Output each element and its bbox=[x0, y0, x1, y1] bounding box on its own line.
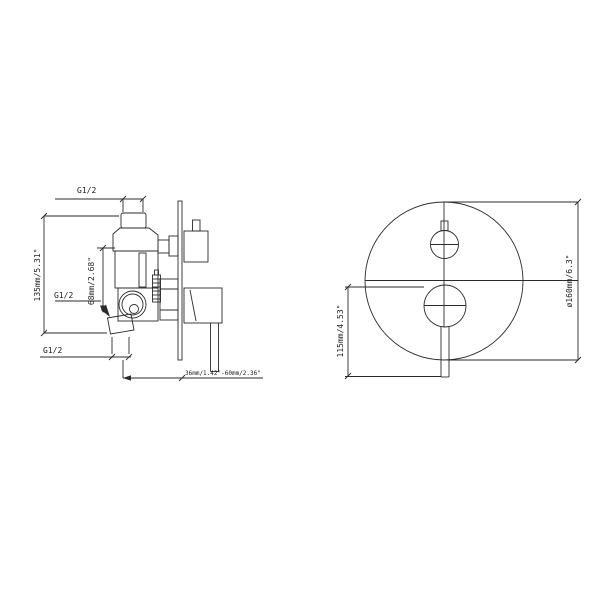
depth-range-label: 36mm/1.42"-60mm/2.36" bbox=[185, 370, 261, 377]
diverter-stem bbox=[193, 220, 201, 231]
diverter-button-front bbox=[431, 221, 459, 259]
diverter-body bbox=[184, 231, 208, 262]
top-thread-label: G1/2 bbox=[77, 186, 96, 195]
diameter-label: ø160mm/6.3" bbox=[565, 255, 574, 308]
hex-section bbox=[113, 228, 158, 251]
handle-knob-circle bbox=[424, 285, 466, 327]
dim-bottom-thread: G1/2 bbox=[40, 337, 132, 360]
handle-body bbox=[184, 288, 222, 323]
dim-arrow-left bbox=[123, 375, 131, 380]
pipe-nut bbox=[158, 240, 169, 253]
top-port bbox=[121, 213, 146, 228]
valve-body bbox=[108, 213, 179, 334]
dim-depth-range: 36mm/1.42"-60mm/2.36" bbox=[123, 360, 263, 381]
cartridge-slot bbox=[139, 253, 146, 287]
diverter-stem-front bbox=[441, 221, 448, 231]
outlet-port-detail bbox=[130, 305, 139, 314]
drawing-canvas: G1/2 135mm/5.31" 68mm/2.68" G1/2 bbox=[0, 0, 610, 610]
diverter-knob-side bbox=[184, 220, 208, 262]
mid-thread-label: G1/2 bbox=[54, 291, 73, 300]
inlet-foot bbox=[108, 314, 135, 334]
handle-knob-front bbox=[424, 285, 466, 377]
front-view: ø160mm/6.3" 115mm/4.53" bbox=[336, 199, 581, 379]
dim-offset: 68mm/2.68" bbox=[87, 245, 115, 313]
label-mid-thread: G1/2 bbox=[54, 291, 110, 317]
cartridge-housing bbox=[160, 279, 178, 320]
offset-label: 68mm/2.68" bbox=[87, 257, 96, 305]
side-view: G1/2 135mm/5.31" 68mm/2.68" G1/2 bbox=[33, 186, 263, 381]
body-block-upper bbox=[115, 251, 158, 288]
wall-plate bbox=[178, 201, 182, 360]
dim-height: 135mm/5.31" bbox=[33, 213, 119, 336]
threaded-stem bbox=[153, 270, 161, 302]
bottom-thread-label: G1/2 bbox=[43, 346, 62, 355]
handle-facet-line bbox=[190, 290, 196, 321]
body-block-lower bbox=[118, 288, 158, 321]
height-label: 135mm/5.31" bbox=[33, 249, 42, 302]
dim-top-thread: G1/2 bbox=[55, 186, 146, 212]
lever-height-label: 115mm/4.53" bbox=[336, 305, 345, 358]
handle-side bbox=[184, 288, 222, 372]
dim-diameter: ø160mm/6.3" bbox=[444, 199, 581, 363]
technical-drawing: G1/2 135mm/5.31" 68mm/2.68" G1/2 bbox=[0, 0, 610, 610]
pipe-sleeve bbox=[169, 236, 178, 256]
